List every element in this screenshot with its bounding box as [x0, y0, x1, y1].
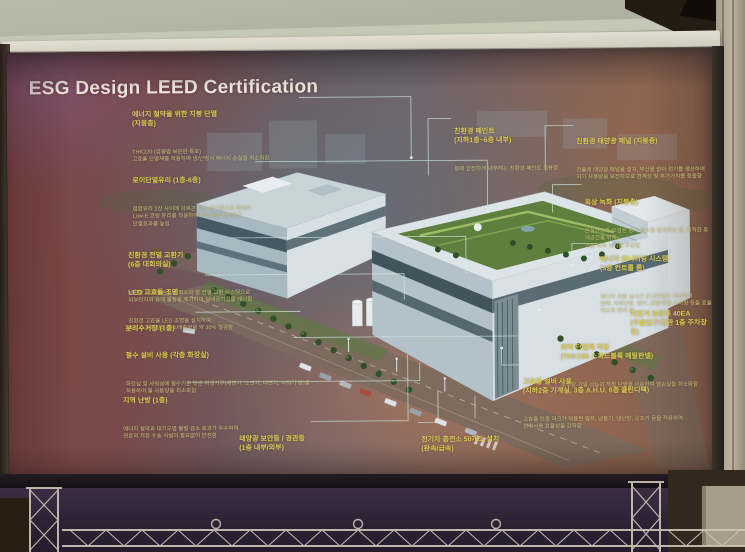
- stage-truss: [0, 480, 745, 552]
- annotation-solar-security-lights: 태양광 보안등 / 경관등 (1층 내부/외부): [239, 417, 349, 471]
- screen-right-edge: [712, 46, 724, 482]
- annotation-hvac-equipment: 고효율 설비 사용 (지하2층 기계실, 3층 A.H.U, 6층 클린디팩) …: [523, 360, 714, 450]
- annotation-eco-paint: 친환경 페인트 (지하1층~6층 내부) 몸에 안전하게 내부에는 친환경 페인…: [454, 110, 575, 192]
- photo-of-projection-screen: ESG Design LEED Certification: [0, 0, 745, 552]
- projection-screen: ESG Design LEED Certification: [7, 48, 718, 481]
